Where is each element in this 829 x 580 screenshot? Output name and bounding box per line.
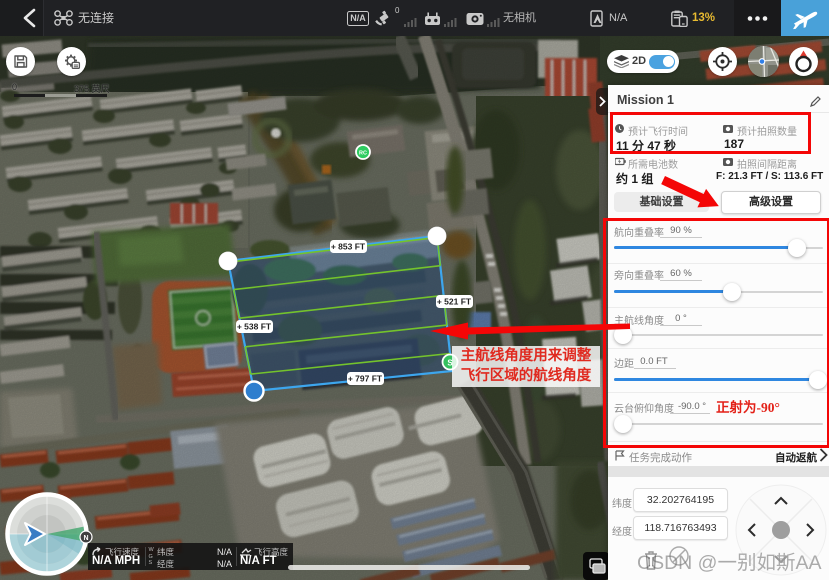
svg-text:N: N (83, 535, 88, 542)
svg-text:+ 521 FT: + 521 FT (437, 297, 472, 307)
svg-text:+ 538 FT: + 538 FT (237, 322, 272, 332)
svg-text:RC: RC (359, 151, 367, 157)
svg-text:+ 853 FT: + 853 FT (331, 242, 366, 252)
svg-text:+ 797 FT: + 797 FT (348, 374, 383, 384)
